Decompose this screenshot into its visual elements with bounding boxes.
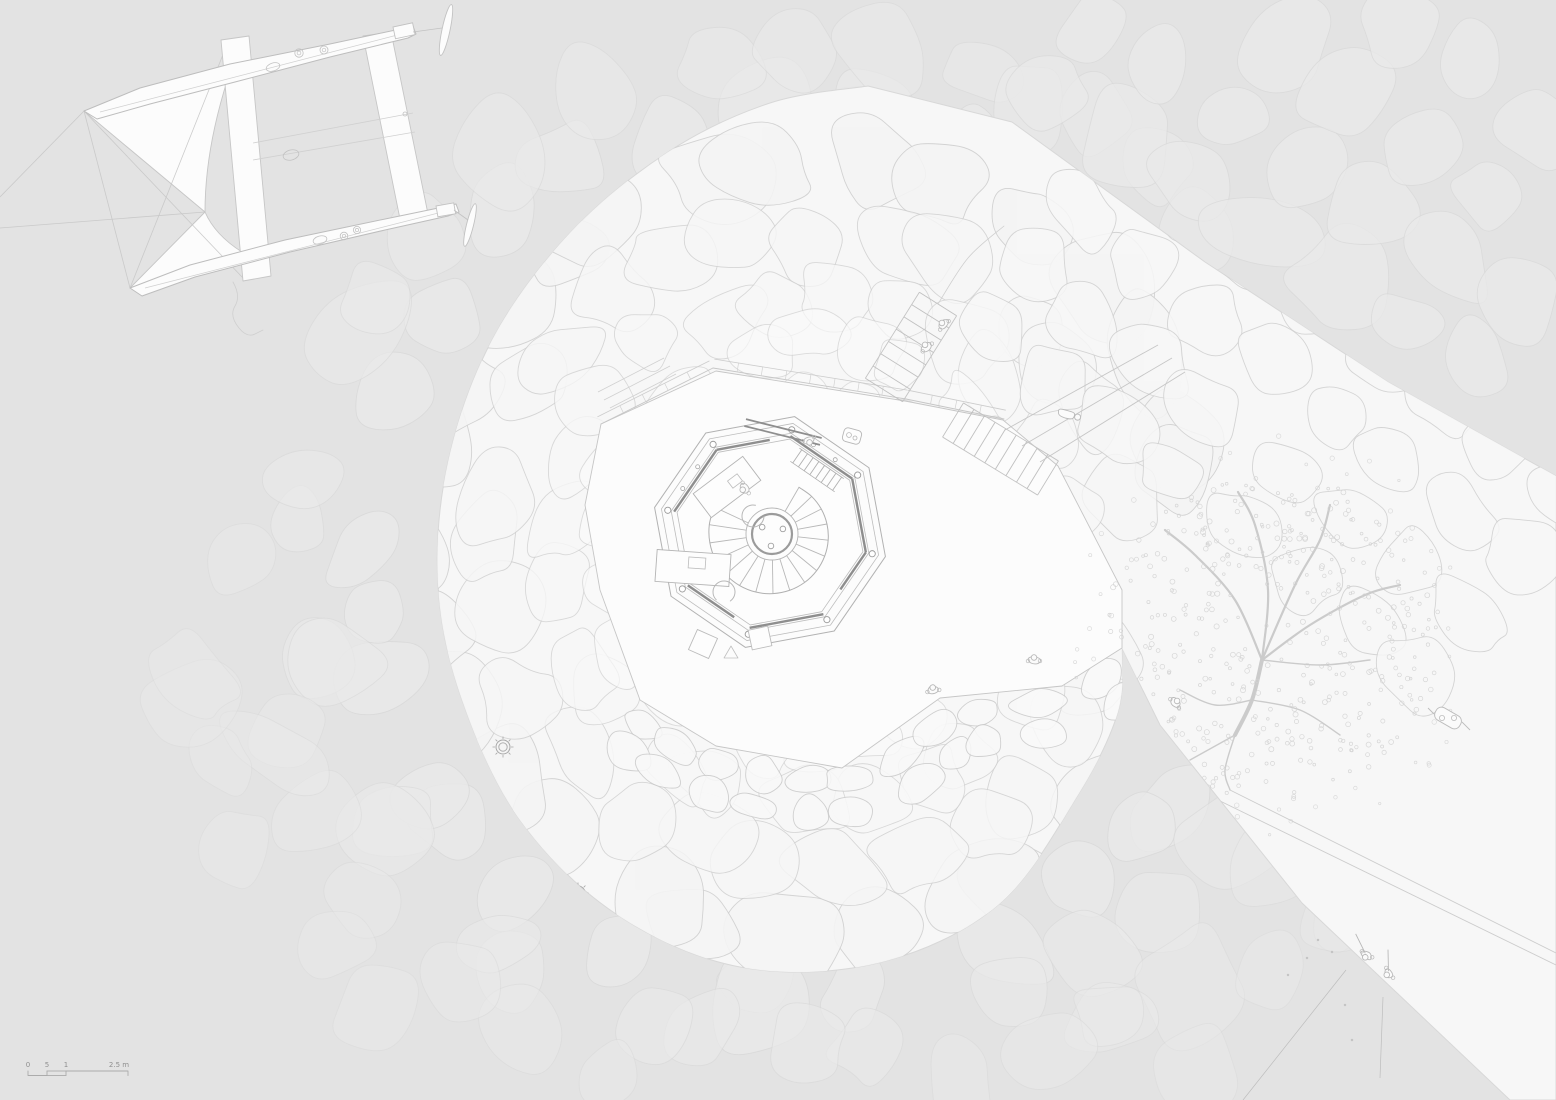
scale-label-1: 5 (45, 1061, 49, 1069)
scale-label-0: 0 (26, 1061, 30, 1069)
desk (655, 549, 731, 586)
site-plan-canvas: 0512.5 m (0, 0, 1556, 1100)
stool (748, 626, 772, 650)
scale-label-3: 2.5 m (109, 1061, 129, 1069)
site-plan-drawing: 0512.5 m (0, 0, 1556, 1100)
scale-label-2: 1 (64, 1061, 68, 1069)
